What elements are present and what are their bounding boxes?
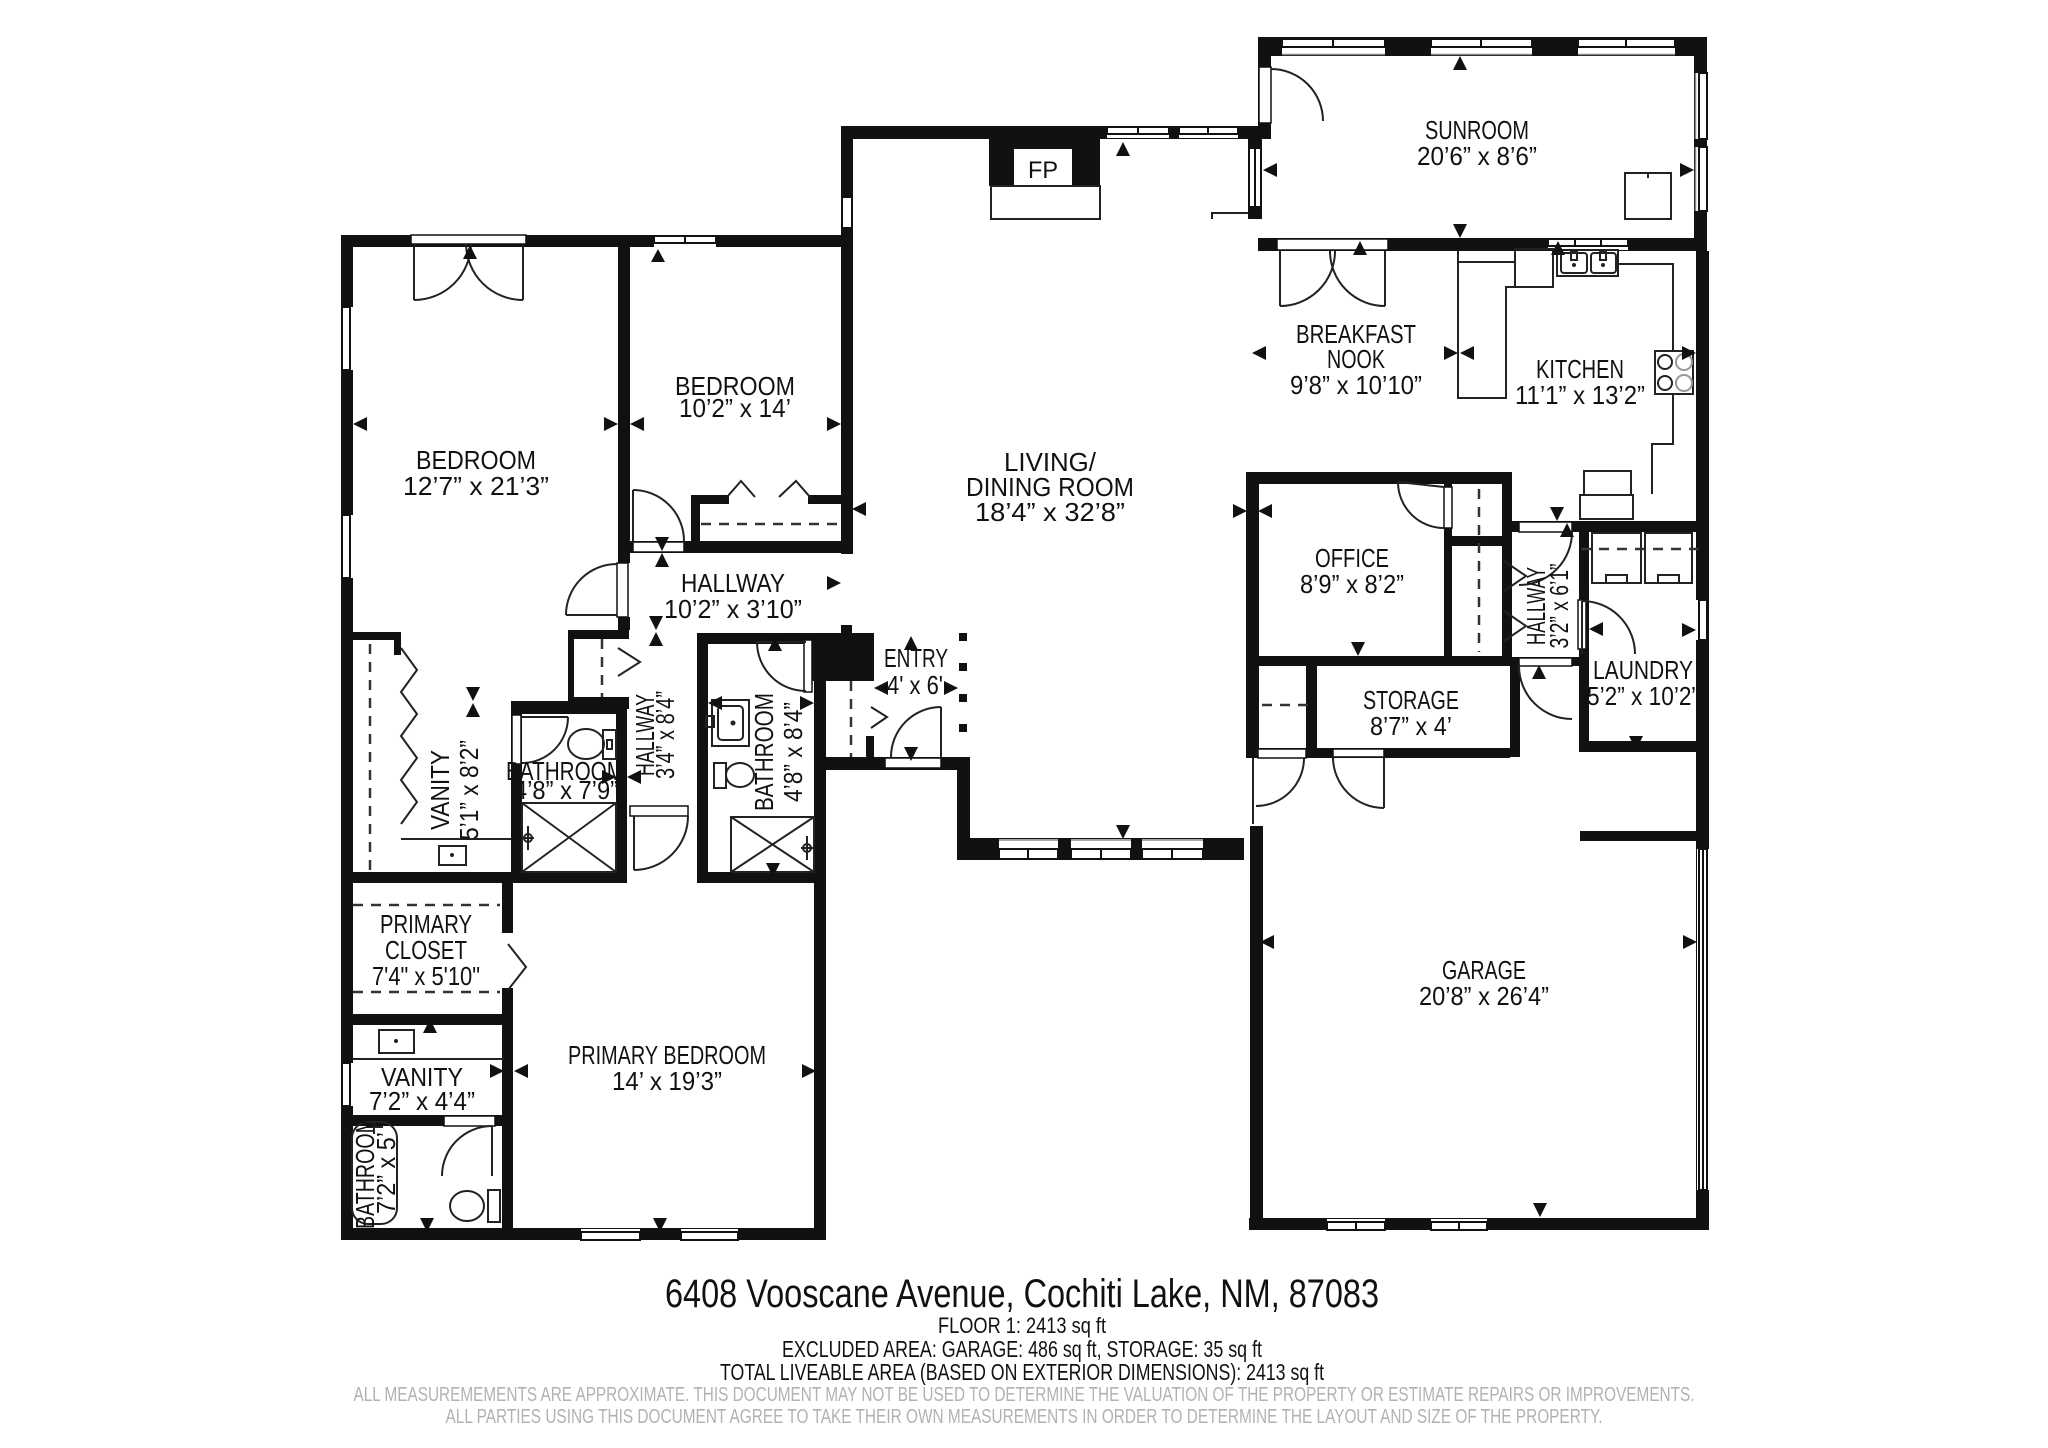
svg-text:5’1” x 8’2”: 5’1” x 8’2” [454,740,484,840]
svg-text:18’4” x 32’8”: 18’4” x 32’8” [975,497,1125,527]
svg-text:14’ x 19’3”: 14’ x 19’3” [612,1066,722,1096]
svg-text:TOTAL LIVEABLE AREA (BASED ON: TOTAL LIVEABLE AREA (BASED ON EXTERIOR D… [720,1359,1324,1385]
svg-text:20’8” x 26’4”: 20’8” x 26’4” [1419,981,1549,1011]
svg-text:8’7” x 4’: 8’7” x 4’ [1370,711,1452,741]
svg-text:10’2” x 3’10”: 10’2” x 3’10” [664,594,802,624]
svg-text:8’9” x 8’2”: 8’9” x 8’2” [1300,569,1404,599]
svg-text:12’7” x 21’3”: 12’7” x 21’3” [403,471,549,501]
svg-text:7’2” x 4’4”: 7’2” x 4’4” [369,1086,475,1116]
svg-text:6408 Vooscane Avenue, Cochiti: 6408 Vooscane Avenue, Cochiti Lake, NM, … [665,1272,1379,1316]
svg-text:10’2” x 14’: 10’2” x 14’ [679,393,791,423]
svg-text:4' x 6': 4' x 6' [887,670,943,700]
svg-text:ALL MEASUREMEMENTS ARE APPROXI: ALL MEASUREMEMENTS ARE APPROXIMATE. THIS… [354,1384,1695,1406]
svg-text:11’1” x 13’2”: 11’1” x 13’2” [1515,380,1645,410]
svg-text:BATHROOM: BATHROOM [749,693,779,811]
svg-text:3’2” x 6’1”: 3’2” x 6’1” [1544,564,1574,649]
svg-text:VANITY: VANITY [425,750,455,830]
svg-text:ALL PARTIES USING THIS DOCUMEN: ALL PARTIES USING THIS DOCUMENT AGREE TO… [446,1406,1603,1428]
svg-text:FP: FP [1028,157,1058,184]
svg-text:4’8” x 8’4”: 4’8” x 8’4” [778,702,808,802]
svg-text:7’2” x 5’: 7’2” x 5’ [371,1132,401,1214]
svg-text:20’6” x 8’6”: 20’6” x 8’6” [1417,141,1537,171]
svg-text:FLOOR 1: 2413 sq ft: FLOOR 1: 2413 sq ft [938,1313,1106,1338]
svg-text:3’4” x 8’4”: 3’4” x 8’4” [650,691,680,779]
svg-text:5’2” x 10’2”: 5’2” x 10’2” [1587,681,1699,711]
svg-text:7'4" x 5'10": 7'4" x 5'10" [372,961,480,991]
svg-text:9’8” x 10’10”: 9’8” x 10’10” [1290,370,1422,400]
